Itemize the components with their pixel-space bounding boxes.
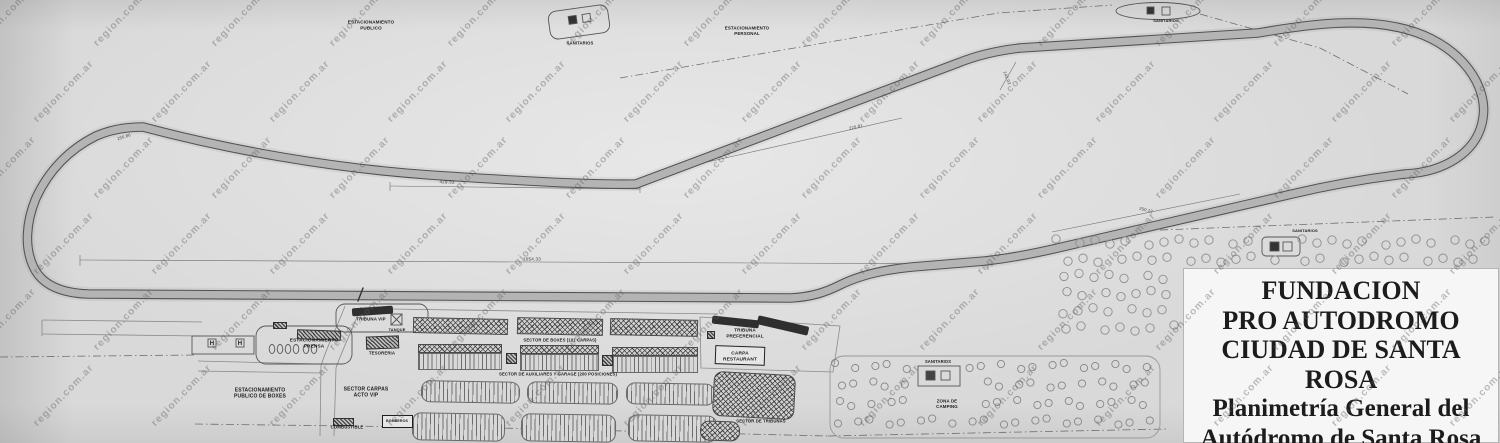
sanitarios-building-top (547, 4, 610, 40)
title-line: Autódromo de Santa Rosa (1184, 424, 1498, 443)
sanitarios-building-top-right (1116, 3, 1200, 20)
helipad-strip-outline (192, 336, 254, 354)
bomberos-building (382, 415, 413, 428)
race-track (27, 23, 1483, 301)
title-line: Planimetría General del (1184, 394, 1498, 424)
paddock-row-block (521, 413, 616, 443)
service-hatch (506, 353, 517, 364)
paddock-row-block (421, 380, 520, 404)
carpa-restaurant-building (715, 345, 766, 366)
paddock-row-block (527, 381, 618, 405)
planimetry-drawing: ESTACIONAMIENTO PUBLICOSANITARIOSESTACIO… (0, 0, 1500, 443)
paddock-row-block (412, 412, 505, 442)
sanitarios-building-right (1262, 237, 1300, 256)
track-halo (27, 23, 1483, 298)
tribunas-block (700, 420, 741, 441)
garage-comb-block (520, 354, 599, 371)
track-road (27, 23, 1483, 298)
garage-comb-block (612, 356, 698, 373)
carpas-strip (612, 347, 698, 356)
water-tank-icon (391, 314, 402, 325)
camping-tree-icons (831, 359, 1153, 428)
press-hatch-bar (297, 329, 341, 341)
paddock-row-block (626, 382, 715, 406)
title-line: CIUDAD DE SANTA ROSA (1184, 335, 1498, 394)
title-line: PRO AUTODROMO (1184, 306, 1498, 336)
parked-cars-icons (269, 345, 317, 354)
service-hatch (602, 355, 613, 366)
carpas-block (413, 317, 508, 335)
sanitarios-building-camping (918, 366, 960, 386)
carpas-block (517, 317, 603, 336)
small-kiosk-building (707, 331, 715, 339)
title-block: FUNDACION PRO AUTODROMO CIUDAD DE SANTA … (1183, 268, 1499, 443)
tribunas-block (712, 371, 796, 420)
small-office-building (273, 322, 287, 329)
carpas-strip (418, 344, 502, 353)
garage-comb-block (418, 353, 502, 370)
title-line: FUNDACION (1184, 276, 1498, 306)
combustible-building (333, 418, 354, 426)
carpas-strip (520, 345, 599, 354)
tesoreria-building (366, 335, 399, 349)
carpas-block (610, 318, 698, 337)
track-casing (27, 23, 1483, 298)
camping-area-outline (830, 356, 1160, 438)
dimension-lines (80, 62, 1240, 270)
